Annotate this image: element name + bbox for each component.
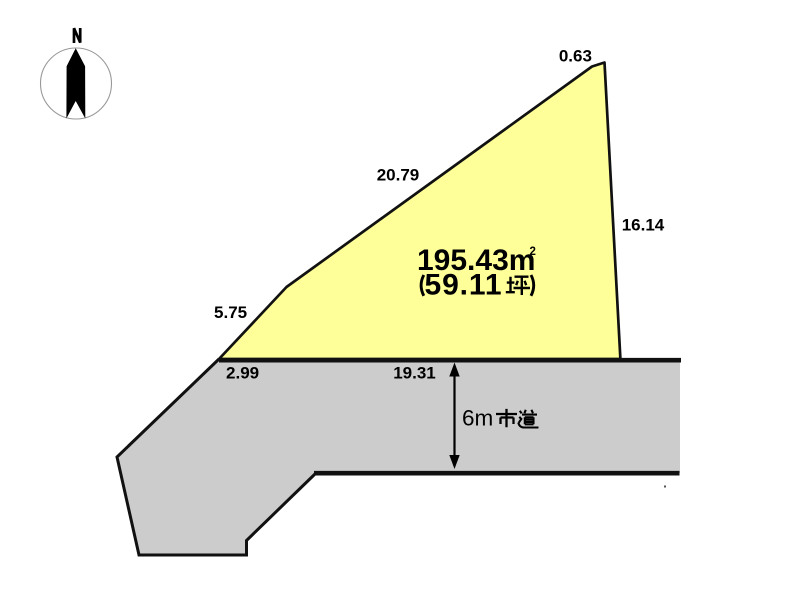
svg-text:0.63: 0.63: [559, 47, 592, 66]
svg-text:20.79: 20.79: [377, 166, 420, 185]
svg-text:16.14: 16.14: [622, 216, 665, 235]
svg-text:6m: 6m: [462, 406, 493, 431]
svg-text:19.31: 19.31: [393, 364, 436, 383]
svg-text:2: 2: [530, 246, 536, 258]
svg-text:5.75: 5.75: [214, 303, 247, 322]
svg-text:59.11: 59.11: [425, 269, 503, 302]
svg-text:2.99: 2.99: [226, 364, 259, 383]
